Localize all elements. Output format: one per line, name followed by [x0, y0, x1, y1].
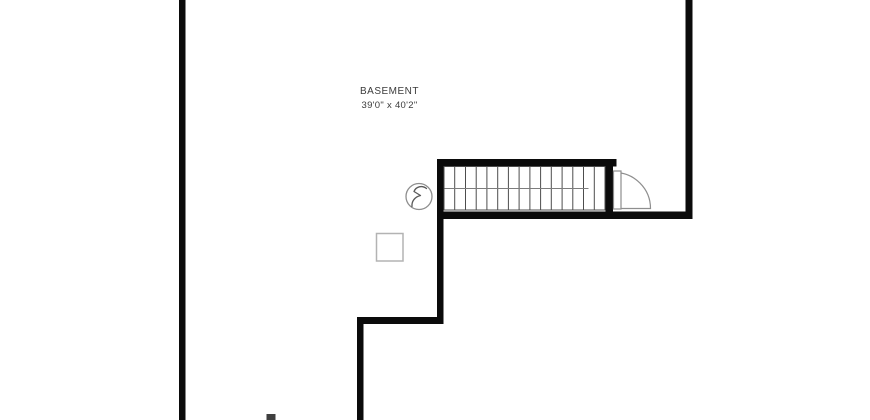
column-post — [377, 234, 404, 262]
wall-lower-left — [357, 317, 364, 420]
electrical-bolt-icon — [406, 184, 432, 210]
wall-corridor — [437, 159, 444, 324]
wall-left-exterior — [179, 0, 186, 420]
floorplan-canvas: BASEMENT 39'0" x 40'2" — [0, 0, 870, 420]
wall-right-exterior — [686, 0, 693, 219]
staircase — [444, 167, 605, 211]
door-leaf — [614, 171, 622, 209]
wall-bottom — [437, 212, 693, 220]
room-name: BASEMENT — [319, 85, 460, 98]
wall-jog — [357, 317, 444, 324]
wall-stair-top — [437, 159, 617, 167]
floorplan-drawing — [0, 0, 870, 420]
wall-stair-end — [606, 159, 614, 219]
room-dimensions: 39'0" x 40'2" — [319, 100, 460, 112]
room-label: BASEMENT 39'0" x 40'2" — [319, 85, 460, 112]
door-swing — [614, 171, 651, 209]
walls — [179, 0, 693, 420]
wall-stub — [267, 414, 276, 420]
